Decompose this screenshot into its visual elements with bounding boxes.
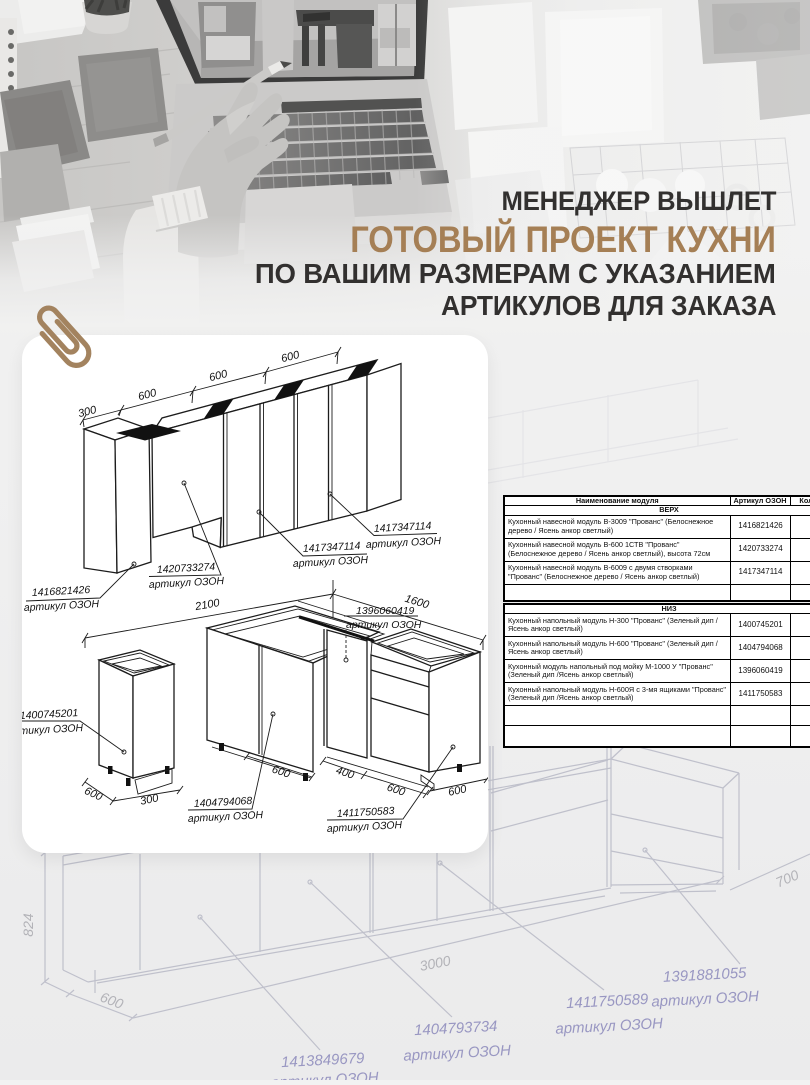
svg-text:1411750583: 1411750583: [337, 805, 395, 820]
svg-text:артикул ОЗОН: артикул ОЗОН: [403, 1042, 512, 1065]
svg-text:1400745201: 1400745201: [22, 707, 78, 722]
svg-text:600: 600: [447, 783, 468, 799]
svg-text:артикул ОЗОН: артикул ОЗОН: [651, 988, 760, 1011]
svg-text:400: 400: [334, 765, 356, 782]
svg-text:артикул ОЗОН: артикул ОЗОН: [366, 535, 442, 551]
svg-text:3000: 3000: [418, 952, 452, 974]
svg-text:600: 600: [82, 785, 104, 804]
svg-text:артикул ОЗОН: артикул ОЗОН: [24, 598, 100, 614]
svg-text:1404794068: 1404794068: [194, 795, 253, 810]
svg-text:1420733274: 1420733274: [157, 561, 216, 576]
svg-text:1413849679: 1413849679: [281, 1050, 366, 1071]
svg-text:300: 300: [139, 792, 160, 808]
svg-text:600: 600: [98, 989, 126, 1012]
svg-text:700: 700: [773, 866, 801, 890]
svg-text:600: 600: [385, 782, 407, 799]
svg-text:артикул ОЗОН: артикул ОЗОН: [149, 575, 225, 591]
svg-text:1416821426: 1416821426: [32, 584, 91, 599]
svg-text:артикул ОЗОН: артикул ОЗОН: [346, 619, 422, 631]
svg-text:артикул ОЗОН: артикул ОЗОН: [188, 809, 264, 825]
svg-text:1391881055: 1391881055: [663, 965, 748, 986]
svg-text:1396060419: 1396060419: [356, 605, 415, 617]
svg-text:артикул ОЗОН: артикул ОЗОН: [555, 1015, 664, 1038]
svg-text:1417347114: 1417347114: [374, 520, 432, 535]
svg-text:артикул ОЗОН: артикул ОЗОН: [293, 554, 369, 570]
svg-text:2100: 2100: [193, 597, 221, 613]
svg-text:артикул ОЗОН: артикул ОЗОН: [22, 722, 84, 738]
svg-text:600: 600: [208, 368, 230, 384]
svg-text:300: 300: [77, 404, 99, 420]
svg-text:артикул ОЗОН: артикул ОЗОН: [327, 819, 403, 835]
svg-text:824: 824: [20, 913, 36, 937]
svg-text:600: 600: [270, 764, 292, 781]
svg-text:1417347114: 1417347114: [303, 540, 361, 555]
svg-text:1404793734: 1404793734: [414, 1018, 498, 1039]
svg-text:1411750589: 1411750589: [566, 991, 650, 1012]
